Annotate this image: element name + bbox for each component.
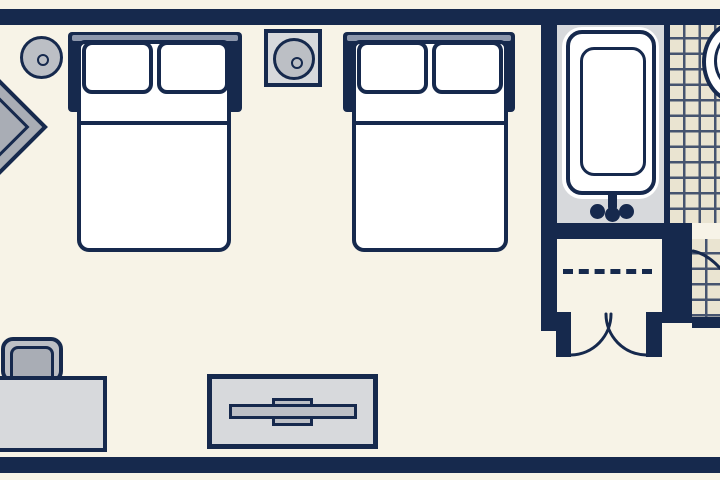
nightstand <box>264 29 322 87</box>
faucet-knob-right-icon <box>619 204 634 219</box>
desk <box>0 376 107 452</box>
bed-1-pillow-right <box>157 41 229 94</box>
table-lamp-icon <box>273 38 315 80</box>
closet-jamb-left <box>556 312 571 357</box>
bed-2-pillow-left <box>357 41 428 94</box>
bed-1-sheet-line <box>81 121 227 125</box>
bathtub-basin <box>580 47 646 176</box>
closet-door-left-arc <box>571 314 611 355</box>
tv-icon <box>229 404 357 419</box>
faucet-knob-left-icon <box>590 204 605 219</box>
closet-rod-dashed-line <box>563 269 652 274</box>
floorplan-canvas <box>0 0 720 480</box>
faucet-drain-icon <box>605 207 620 222</box>
closet-door-right-arc <box>606 314 646 355</box>
ceiling-light-center-icon <box>37 54 49 66</box>
wall-bottom <box>0 457 720 473</box>
tiled-floor-upper <box>670 24 720 223</box>
table-lamp-center-icon <box>291 57 303 69</box>
closet-jamb-right <box>646 312 662 357</box>
ceiling-light-icon <box>20 36 63 79</box>
wall-tile-bottom <box>692 317 720 328</box>
bed-2-sheet-line <box>356 121 504 125</box>
wall-tub-separator <box>664 24 670 223</box>
bed-1-pillow-left <box>82 41 153 94</box>
wall-bathroom-divider <box>541 9 557 331</box>
wall-closet-right <box>662 239 692 323</box>
wall-bathroom-horizontal <box>541 223 692 239</box>
bed-2-pillow-right <box>432 41 503 94</box>
wall-top <box>0 9 720 25</box>
tiled-floor-lower <box>692 239 720 328</box>
